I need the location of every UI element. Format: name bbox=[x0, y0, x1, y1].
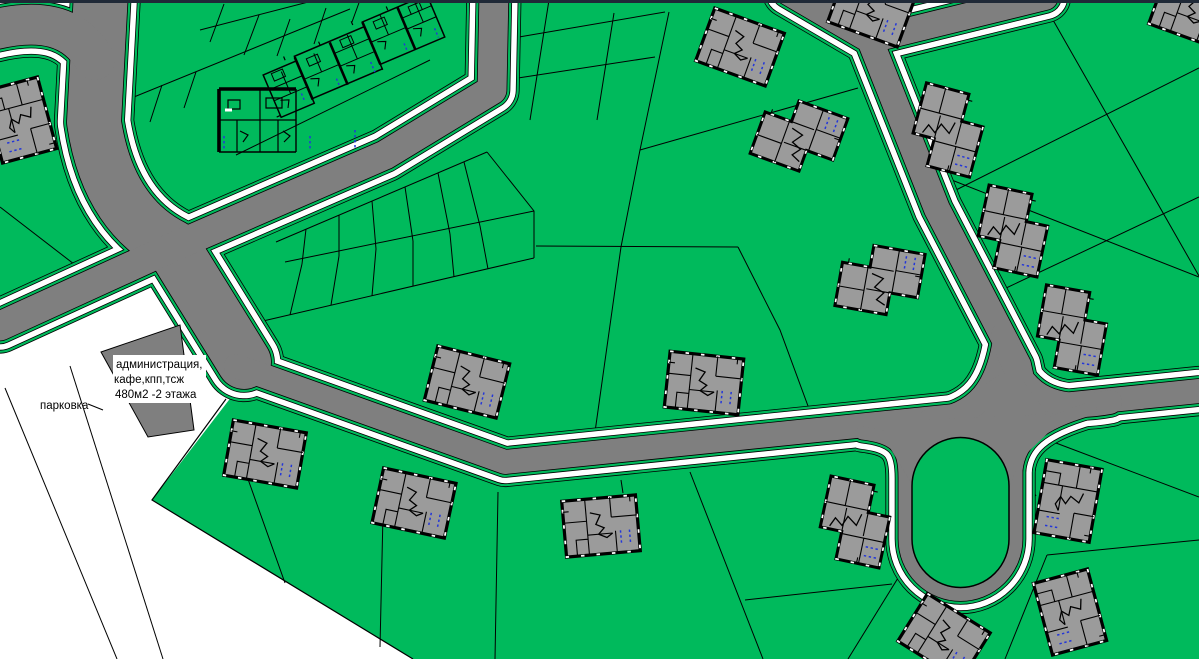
svg-text:480м2 -2 этажа: 480м2 -2 этажа bbox=[115, 389, 197, 401]
svg-text:парковка: парковка bbox=[40, 400, 89, 412]
svg-text:администрация,: администрация, bbox=[116, 359, 202, 371]
svg-text:кафе,кпп,тсж: кафе,кпп,тсж bbox=[114, 374, 184, 386]
